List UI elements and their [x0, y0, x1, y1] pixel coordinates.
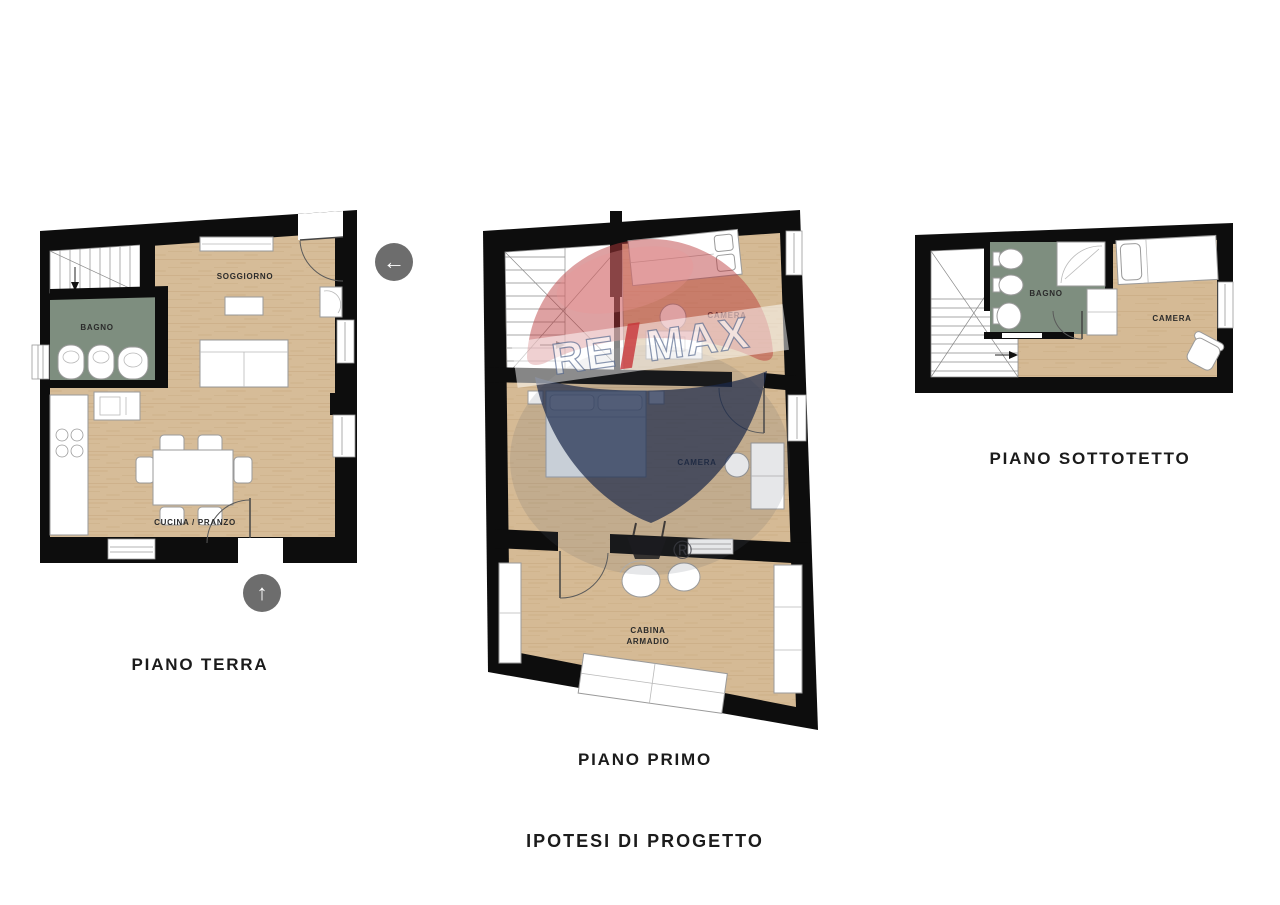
desk-chair — [725, 453, 749, 477]
window-right — [1218, 282, 1233, 328]
pouf-1 — [622, 565, 660, 597]
piano-primo-label: PIANO PRIMO — [500, 750, 790, 770]
bidet-icon — [88, 345, 114, 379]
nightstand-right — [649, 391, 664, 404]
floor-plan-piano-terra: BAGNO SOGGIORN — [30, 195, 430, 580]
floor-plan-piano-sottotetto: BAGNO CAMERA — [905, 215, 1250, 410]
arrow-up-button[interactable]: ↑ — [243, 574, 281, 612]
room-label-camera-middle: CAMERA — [677, 458, 716, 467]
primo-wall-stub — [610, 211, 622, 297]
room-label-bagno-sottotetto: BAGNO — [1029, 289, 1062, 298]
nightstand-left — [528, 391, 543, 404]
coffee-table — [225, 297, 263, 315]
shelving-right — [774, 565, 802, 693]
project-hypothesis-label: IPOTESI DI PROGETTO — [490, 831, 800, 852]
sottotetto-closet — [1087, 289, 1117, 335]
floorplan-canvas: BAGNO SOGGIORN — [0, 0, 1280, 905]
sideboard — [200, 237, 273, 251]
wall-notch — [330, 393, 357, 415]
shower-icon — [1057, 242, 1105, 286]
room-label-cabina-line2: ARMADIO — [626, 637, 669, 646]
window-right-top — [786, 231, 802, 275]
room-label-bagno: BAGNO — [80, 323, 113, 332]
piano-terra-label: PIANO TERRA — [55, 655, 345, 675]
sink-icon — [118, 347, 148, 379]
pouf-2 — [668, 563, 700, 591]
piano-sottotetto-label: PIANO SOTTOTETTO — [945, 449, 1235, 469]
window-right-wall-1 — [337, 320, 354, 363]
toilet-icon — [58, 345, 84, 379]
room-label-cabina-line1: CABINA — [630, 626, 665, 635]
window-left-wall — [32, 345, 49, 379]
bidet-icon — [993, 275, 1023, 295]
arrow-left-button[interactable]: ← — [375, 243, 413, 281]
kitchen-counter — [50, 395, 88, 535]
up-arrow-icon: ↑ — [257, 582, 268, 604]
internal-window — [688, 539, 733, 554]
bed-single — [1116, 235, 1218, 284]
room-label-soggiorno: SOGGIORNO — [217, 272, 274, 281]
terra-bagno: BAGNO — [50, 286, 168, 388]
terra-staircase — [50, 245, 140, 293]
primo-wall-thin — [614, 297, 620, 377]
kitchen-sink — [94, 392, 140, 420]
tv-cabinet — [320, 287, 342, 317]
entry-opening — [238, 538, 283, 564]
bed-double — [546, 391, 646, 477]
sofa — [200, 340, 288, 387]
primo-stairwell — [505, 244, 624, 375]
threshold — [1002, 333, 1042, 338]
window-right-wall-2 — [333, 415, 355, 457]
desk-chair — [660, 304, 686, 330]
window-bottom-wall — [108, 539, 155, 559]
left-arrow-icon: ← — [383, 251, 405, 273]
room-label-camera-top: CAMERA — [707, 311, 746, 320]
shelving-left — [499, 563, 521, 663]
terra-wall-stub — [140, 233, 155, 290]
floor-plan-piano-primo: CAMERA — [470, 195, 840, 755]
window-right-middle — [788, 395, 806, 441]
toilet-icon — [993, 249, 1023, 269]
room-label-camera-sottotetto: CAMERA — [1152, 314, 1191, 323]
room-label-cucina-pranzo: CUCINA / PRANZO — [154, 518, 236, 527]
